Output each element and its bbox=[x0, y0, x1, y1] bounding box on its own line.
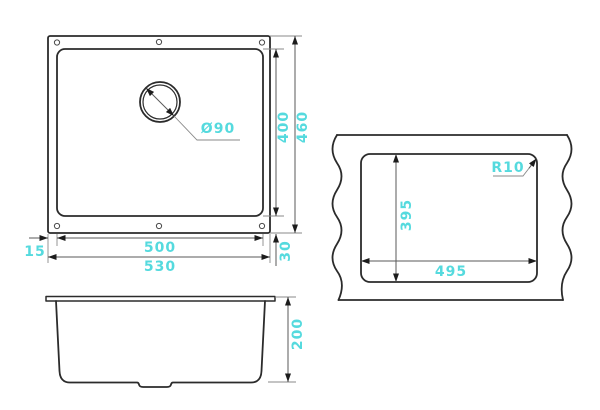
bottom-offset-label: 30 bbox=[278, 240, 294, 261]
mounting-hole bbox=[54, 40, 59, 45]
mounting-hole bbox=[259, 40, 264, 45]
sink-bowl-profile bbox=[56, 301, 265, 387]
inner-width-label: 500 bbox=[144, 240, 176, 256]
mounting-hole bbox=[54, 223, 59, 228]
side-view: 200 bbox=[46, 297, 306, 388]
corner-radius-arrow bbox=[529, 159, 537, 169]
cutout-height-label: 395 bbox=[399, 199, 415, 231]
depth-label: 200 bbox=[290, 318, 306, 350]
countertop-break-edge-right bbox=[562, 135, 572, 300]
mounting-hole bbox=[156, 223, 161, 228]
sink-outer-rim bbox=[48, 36, 270, 233]
inner-height-label: 400 bbox=[276, 111, 292, 143]
drawing-canvas: Ø90 400 460 30 500 530 15 bbox=[0, 0, 600, 410]
corner-radius-label: R10 bbox=[491, 160, 524, 176]
mounting-hole bbox=[156, 39, 161, 44]
technical-drawing: Ø90 400 460 30 500 530 15 bbox=[0, 0, 600, 410]
drain-diameter-arrow bbox=[146, 88, 174, 116]
cutout-view: 395 495 R10 bbox=[333, 135, 572, 300]
countertop-break-edge-left bbox=[333, 135, 342, 300]
mounting-hole bbox=[259, 223, 264, 228]
top-view: Ø90 400 460 30 500 530 15 bbox=[24, 36, 311, 275]
drain-diameter-label: Ø90 bbox=[201, 121, 235, 137]
sink-flange bbox=[46, 297, 275, 302]
cutout-width-label: 495 bbox=[435, 264, 467, 280]
left-offset-label: 15 bbox=[24, 244, 45, 260]
outer-height-label: 460 bbox=[295, 111, 311, 143]
outer-width-label: 530 bbox=[144, 259, 176, 275]
